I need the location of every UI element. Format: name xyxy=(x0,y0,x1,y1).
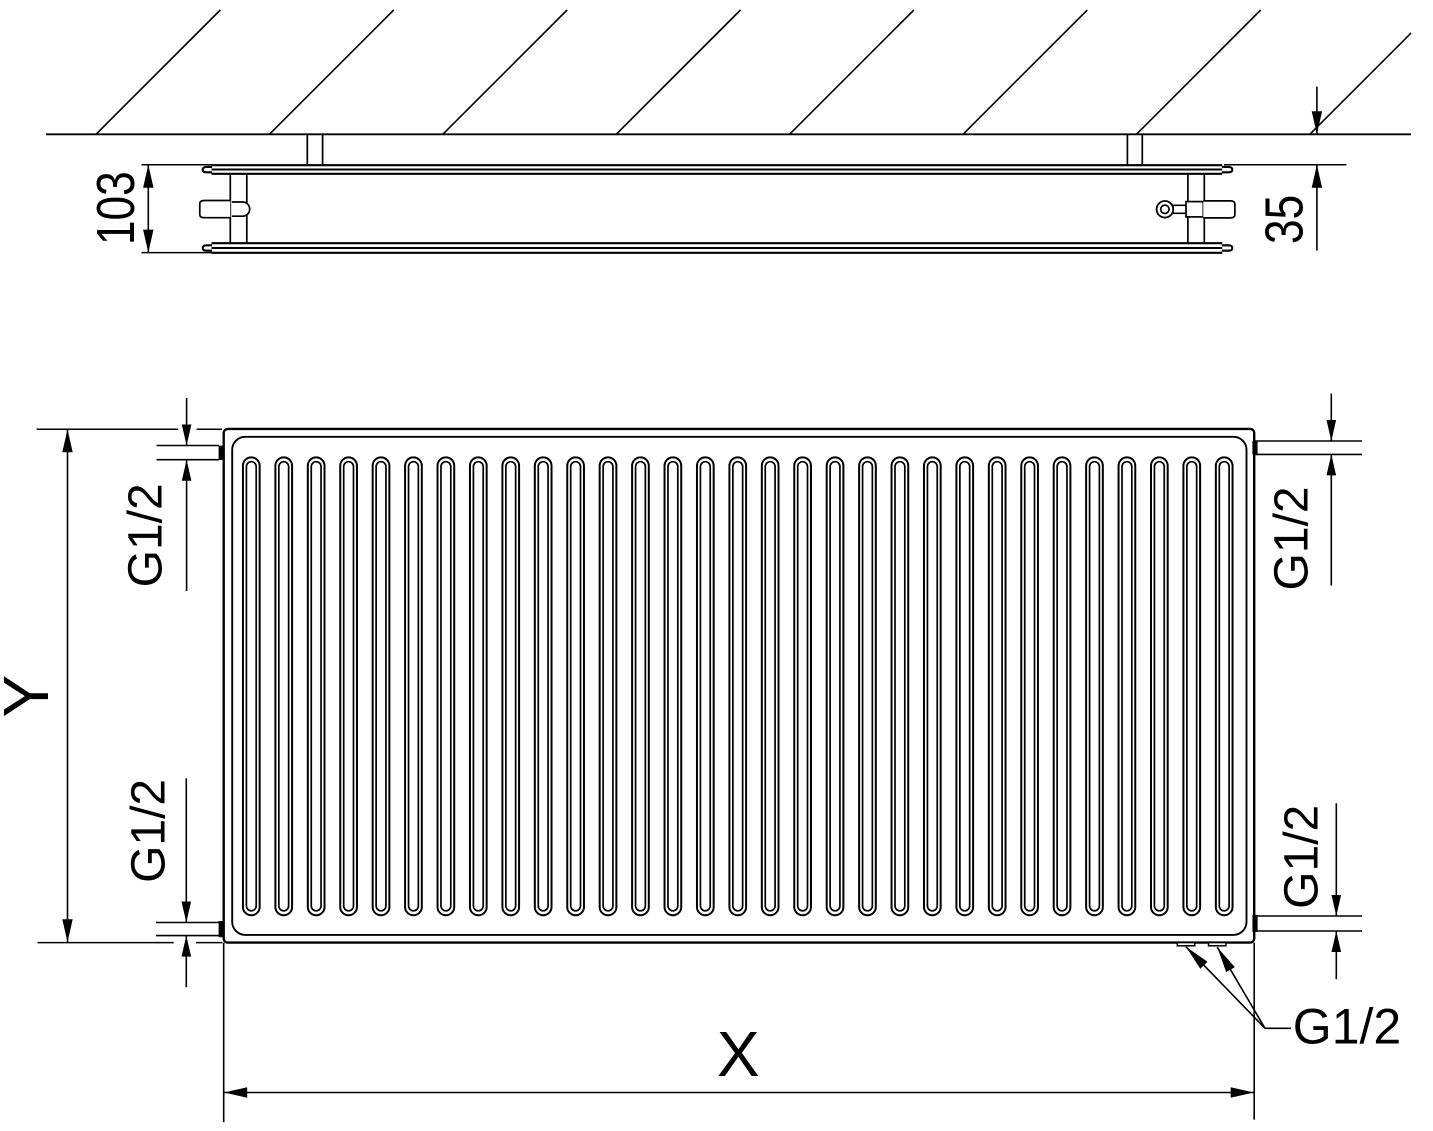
svg-text:G1/2: G1/2 xyxy=(1293,999,1401,1055)
svg-text:103: 103 xyxy=(86,171,146,245)
svg-text:X: X xyxy=(717,1018,760,1090)
svg-text:Y: Y xyxy=(0,675,62,718)
svg-text:35: 35 xyxy=(1254,195,1314,244)
svg-text:G1/2: G1/2 xyxy=(1266,486,1319,590)
svg-text:G1/2: G1/2 xyxy=(120,483,173,587)
svg-text:G1/2: G1/2 xyxy=(1275,805,1328,909)
svg-text:G1/2: G1/2 xyxy=(123,779,176,883)
